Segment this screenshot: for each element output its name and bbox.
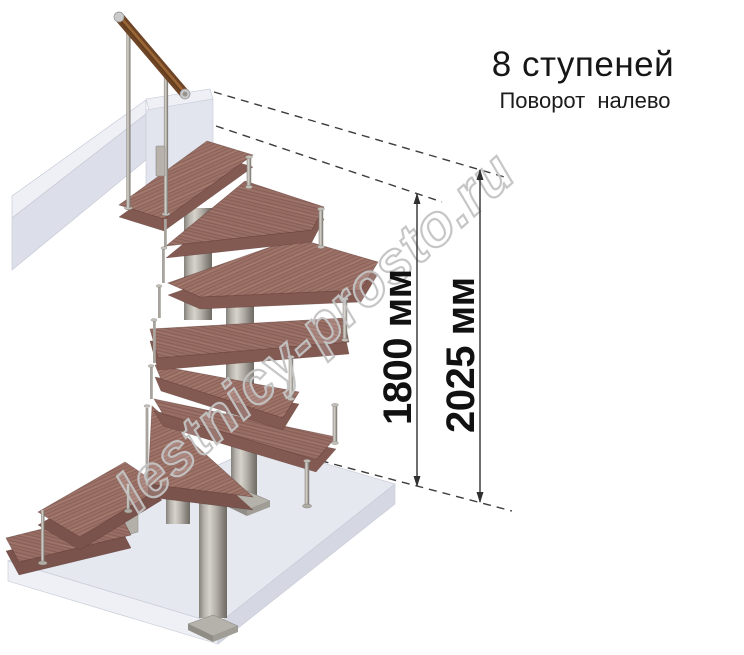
- page-subtitle: Поворот налево: [499, 88, 670, 113]
- page-title: 8 ступеней: [492, 45, 674, 84]
- baluster-left: [126, 26, 130, 208]
- dimension-label-2025: 2025 мм: [439, 277, 483, 433]
- staircase-diagram: lestnicy-prosto.ru 1800 мм 2025 мм 8 сту…: [0, 0, 744, 655]
- staircase-diagram-page: lestnicy-prosto.ru 1800 мм 2025 мм 8 сту…: [0, 0, 744, 655]
- baluster-right: [164, 72, 168, 214]
- dimension-label-1800: 1800 мм: [376, 269, 420, 425]
- baluster-bracket: [156, 146, 165, 176]
- handrail-cap-top: [114, 12, 124, 22]
